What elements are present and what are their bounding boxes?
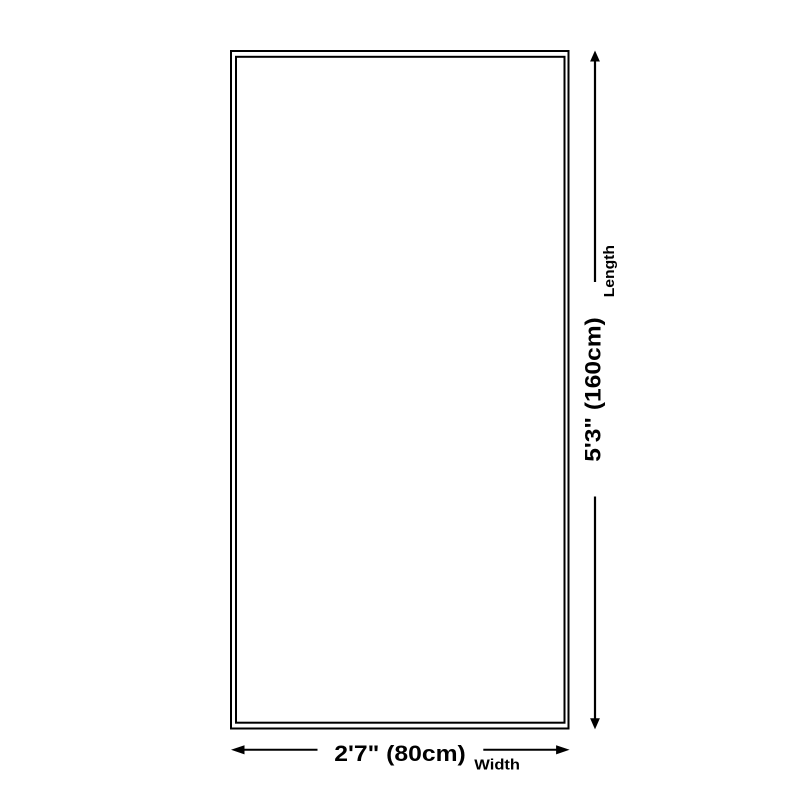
svg-text:5'3" (160cm): 5'3" (160cm) (581, 317, 606, 462)
svg-text:2'7" (80cm): 2'7" (80cm) (334, 741, 466, 766)
svg-text:Width: Width (474, 757, 520, 773)
svg-text:Length: Length (602, 245, 618, 297)
